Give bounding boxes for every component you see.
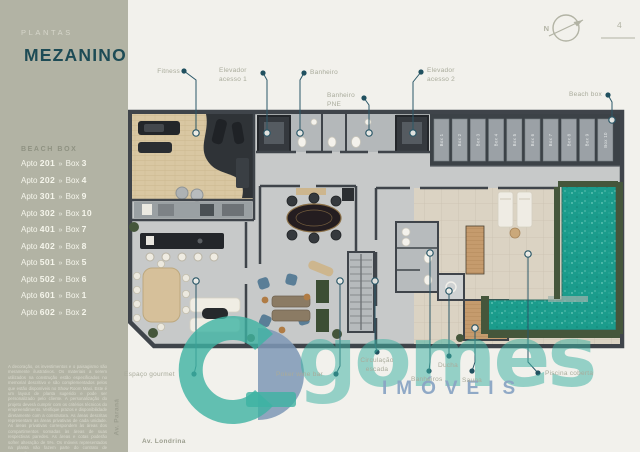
callout-sauna: Sauna [462, 376, 482, 385]
callout-restrooms: Banheiros [411, 375, 443, 384]
street-label-av-londrina: Av. Londrina [142, 438, 186, 445]
callout-fitness: Fitness [146, 67, 180, 76]
list-item: Apto 402 » Box 8 [21, 239, 92, 256]
callout-poker-wine-bar: Poker wine bar [276, 370, 323, 379]
brochure-page: Box 1 Box 2 Box 3 Box 4 Box 5 Box 6 Box … [0, 0, 640, 452]
callout-stair-circulation: Circulação escada [352, 356, 402, 374]
legal-disclaimer: A decoração, os investimentos e o paisag… [8, 364, 107, 452]
list-item: Apto 201 » Box 3 [21, 156, 92, 173]
callout-elevator-1: Elevador acesso 1 [219, 66, 247, 84]
list-item: Apto 502 » Box 6 [21, 272, 92, 289]
callout-bathroom: Banheiro [310, 68, 338, 77]
beach-box-list: Apto 201 » Box 3 Apto 202 » Box 4 Apto 3… [21, 156, 92, 321]
callout-beach-box: Beach box [560, 90, 602, 99]
sidebar: PLANTAS MEZANINO BEACH BOX Apto 201 » Bo… [0, 0, 128, 452]
plans-eyebrow: PLANTAS [21, 28, 73, 37]
list-item: Apto 602 » Box 2 [21, 305, 92, 322]
callout-shower: Ducha [438, 361, 458, 370]
list-item: Apto 401 » Box 7 [21, 222, 92, 239]
list-item: Apto 601 » Box 1 [21, 288, 92, 305]
list-item: Apto 301 » Box 9 [21, 189, 92, 206]
list-item: Apto 302 » Box 10 [21, 206, 92, 223]
callout-elevator-2: Elevador acesso 2 [427, 66, 455, 84]
street-label-av-parana: Av. Paraná [114, 392, 121, 436]
beach-box-list-header: BEACH BOX [21, 146, 77, 153]
list-item: Apto 202 » Box 4 [21, 173, 92, 190]
page-title: MEZANINO [24, 45, 127, 66]
callout-bathroom-pne: Banheiro PNE [327, 91, 355, 109]
callout-gourmet: Espaço gourmet [124, 370, 175, 379]
callout-covered-pool: Piscina coberta [545, 369, 593, 378]
watermark-brand-sub: IMÓVEIS [382, 378, 524, 400]
list-item: Apto 501 » Box 5 [21, 255, 92, 272]
